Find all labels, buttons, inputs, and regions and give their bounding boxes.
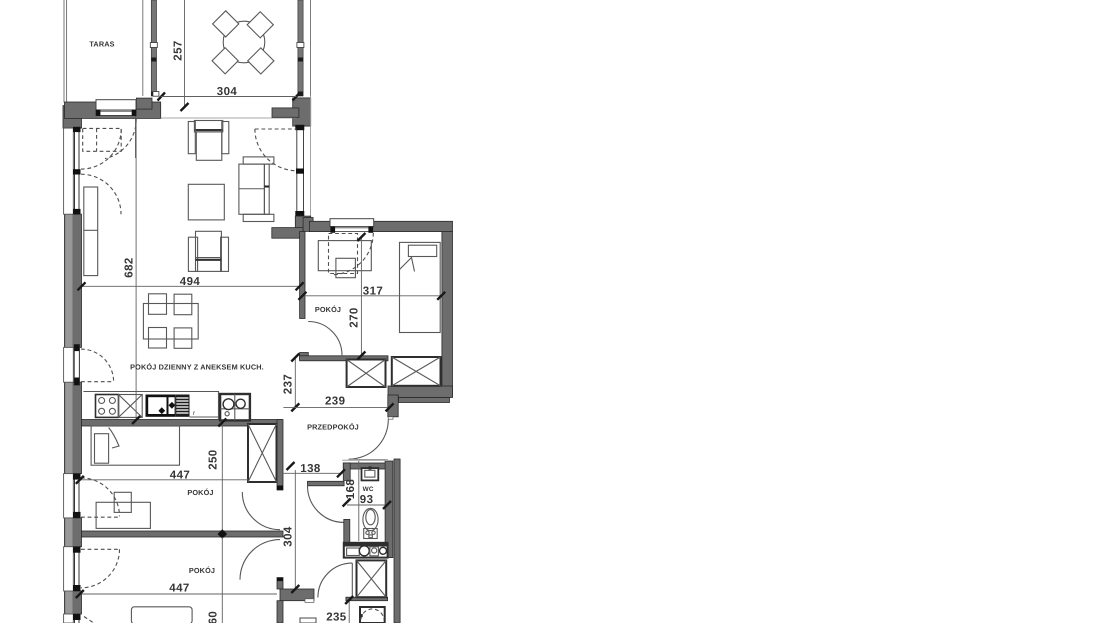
svg-text:317: 317: [363, 286, 383, 298]
svg-text:WC: WC: [363, 486, 374, 493]
svg-text:447: 447: [170, 470, 190, 482]
svg-text:682: 682: [124, 257, 136, 277]
svg-text:POKÓJ: POKÓJ: [187, 488, 213, 497]
svg-text:237: 237: [282, 374, 294, 394]
svg-text:POKÓJ: POKÓJ: [315, 305, 341, 314]
svg-text:93: 93: [360, 494, 374, 506]
svg-text:250: 250: [207, 449, 219, 469]
svg-text:POKÓJ DZIENNY Z ANEKSEM KUCH.: POKÓJ DZIENNY Z ANEKSEM KUCH.: [130, 363, 264, 372]
svg-text:PRZEDPOKÓJ: PRZEDPOKÓJ: [307, 423, 359, 432]
svg-text:235: 235: [326, 612, 347, 623]
svg-text:304: 304: [217, 86, 238, 98]
svg-text:257: 257: [173, 40, 185, 60]
svg-text:494: 494: [180, 276, 201, 288]
svg-text:239: 239: [325, 395, 345, 407]
svg-text:270: 270: [349, 307, 361, 327]
svg-text:TARAS: TARAS: [89, 40, 114, 49]
svg-text:304: 304: [282, 526, 294, 547]
svg-text:POKÓJ: POKÓJ: [189, 566, 215, 575]
svg-text:447: 447: [169, 583, 189, 595]
svg-text:560: 560: [208, 611, 220, 623]
svg-text:168: 168: [345, 479, 357, 500]
svg-text:138: 138: [300, 463, 321, 475]
